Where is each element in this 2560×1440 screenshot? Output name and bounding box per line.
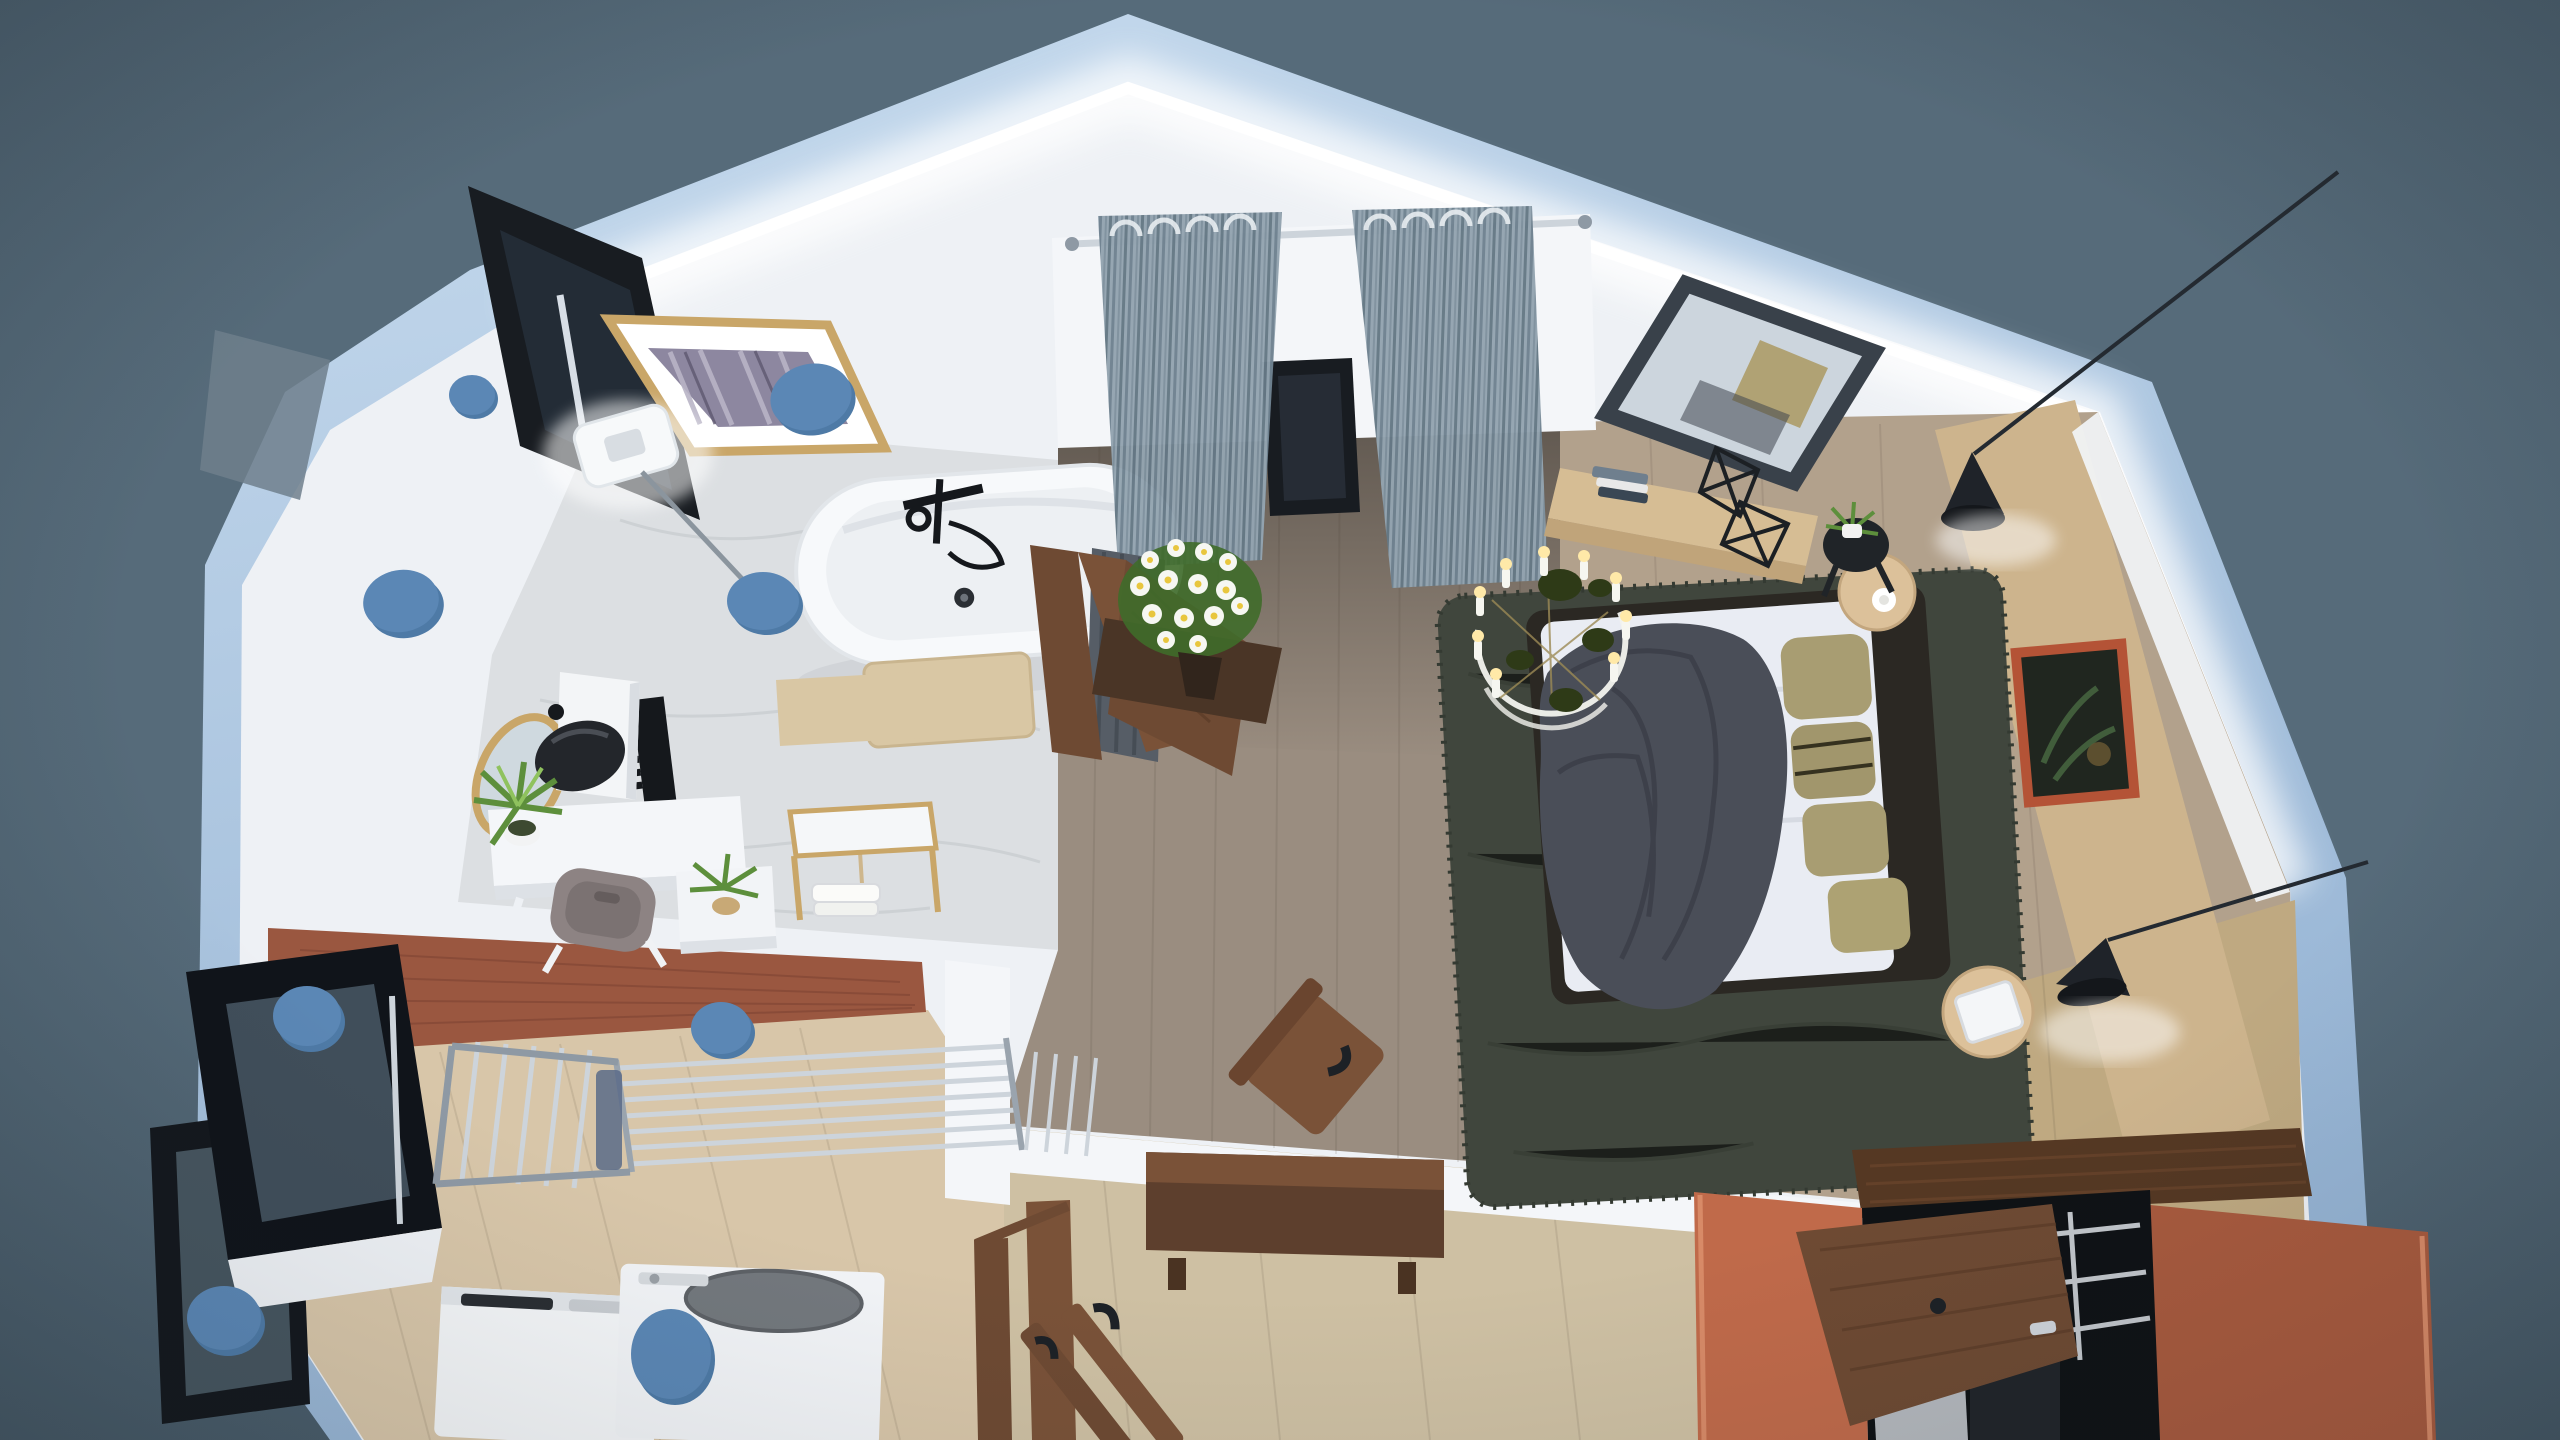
scene-vignette [0, 0, 2560, 1440]
render-viewport [0, 0, 2560, 1440]
